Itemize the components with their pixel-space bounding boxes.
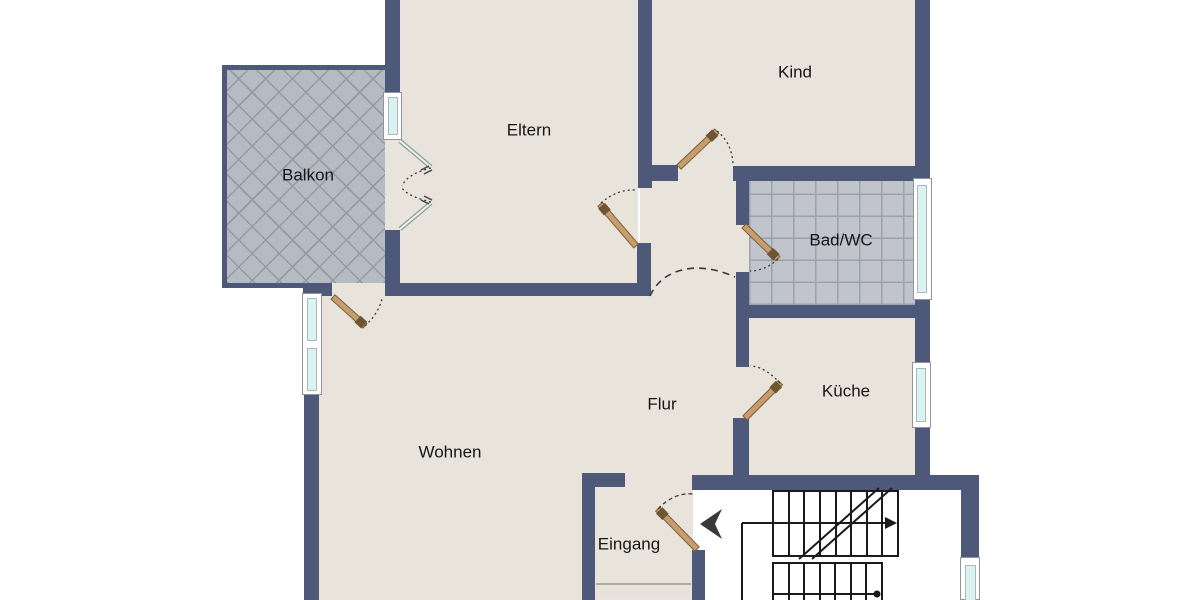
room-label-kueche: Küche <box>822 383 870 400</box>
room-label-bad-wc: Bad/WC <box>809 232 872 249</box>
door-bad-wc <box>741 223 781 271</box>
room-label-eingang: Eingang <box>598 536 660 553</box>
room-label-eltern: Eltern <box>507 122 551 139</box>
stairs-up-arrow-icon <box>885 517 897 529</box>
room-label-balkon: Balkon <box>282 167 334 184</box>
door-eingang <box>655 494 701 552</box>
french-door-balkon <box>400 141 432 229</box>
door-wohnen-balkon <box>330 294 382 329</box>
flur-wohnen-opening-arc <box>650 268 735 296</box>
door-eltern <box>597 190 640 249</box>
room-label-kind: Kind <box>778 64 812 81</box>
room-label-flur: Flur <box>647 396 676 413</box>
symbols-layer <box>0 0 1200 600</box>
door-kind <box>676 128 733 170</box>
floor-plan: Balkon Eltern Kind Bad/WC Küche Flur Woh… <box>0 0 1200 600</box>
entrance-direction-arrow-icon <box>700 509 722 539</box>
stairs-start-dot-icon <box>874 591 881 598</box>
door-kueche <box>742 366 784 421</box>
room-label-wohnen: Wohnen <box>418 444 481 461</box>
stairs <box>742 488 898 600</box>
